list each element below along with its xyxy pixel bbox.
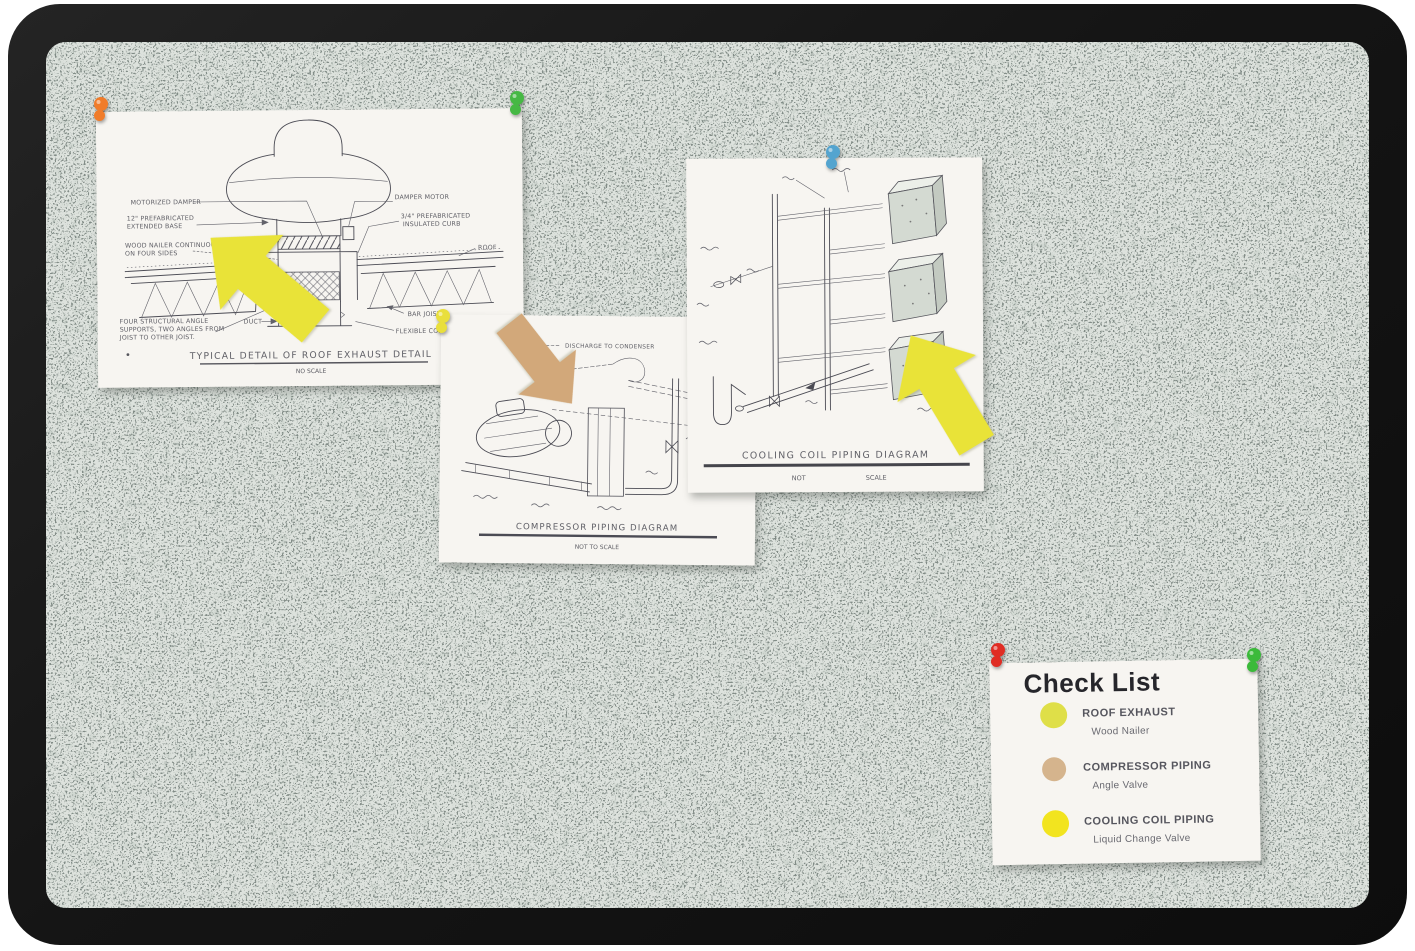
yellow-dot-icon [1040, 702, 1067, 728]
label-angle-supports-3: JOIST TO OTHER JOIST. [119, 334, 195, 342]
checklist-item-cooling-coil: COOLING COIL PIPING Liquid Change Valve [992, 807, 1261, 862]
compressor-title-block: COMPRESSOR PIPING DIAGRAM NOT TO SCALE [479, 522, 717, 552]
checklist-item-label: COOLING COIL PIPING [1084, 813, 1215, 827]
label-roof: ROOF [478, 244, 497, 251]
label-prefab-base-1: 12" PREFABRICATED [127, 215, 194, 223]
checklist-item-sub: Wood Nailer [1091, 726, 1149, 738]
label-insulated-curb-1: 3/4" PREFABRICATED [401, 213, 471, 221]
green-pushpin-icon [507, 90, 527, 123]
checklist-item-roof-exhaust: ROOF EXHAUST Wood Nailer [990, 699, 1259, 754]
yellow-pushpin-icon [433, 308, 453, 341]
label-prefab-base-2: EXTENDED BASE [127, 223, 183, 230]
cooling-coil-scale-left: NOT [792, 474, 806, 482]
cooling-coil-title: COOLING COIL PIPING DIAGRAM [742, 450, 930, 462]
yellow-dot-icon [1042, 810, 1069, 837]
checklist-item-sub: Angle Valve [1092, 780, 1148, 792]
orange-pushpin-icon [91, 96, 111, 129]
checklist-item-compressor-piping: COMPRESSOR PIPING Angle Valve [991, 753, 1260, 808]
compressor-scale-note: NOT TO SCALE [575, 544, 620, 551]
bulletin-board-photo: MOTORIZED DAMPER 12" PREFABRICATED EXTEN… [0, 0, 1415, 951]
label-wood-nailer-2: ON FOUR SIDES [125, 250, 178, 257]
cooling-coil-scale-right: SCALE [866, 474, 887, 482]
checklist-item-sub: Liquid Change Valve [1093, 833, 1190, 846]
label-motorized-damper: MOTORIZED DAMPER [131, 199, 202, 207]
label-damper-motor: DAMPER MOTOR [395, 194, 450, 201]
roof-exhaust-title-block: TYPICAL DETAIL OF ROOF EXHAUST DETAIL NO… [189, 349, 432, 376]
red-pushpin-icon [988, 642, 1008, 675]
checklist-note: Check List ROOF EXHAUST Wood Nailer COMP… [989, 659, 1260, 866]
label-angle-supports-1: FOUR STRUCTURAL ANGLE [120, 318, 209, 326]
blue-pushpin-icon [823, 144, 843, 177]
compressor-title: COMPRESSOR PIPING DIAGRAM [516, 522, 678, 534]
coil-unit [889, 253, 947, 321]
checklist-title: Check List [1023, 666, 1160, 699]
checklist-item-label: COMPRESSOR PIPING [1083, 759, 1211, 773]
checklist-item-label: ROOF EXHAUST [1082, 706, 1176, 720]
green-pushpin-icon [1244, 647, 1264, 680]
label-insulated-curb-2: INSULATED CURB [403, 221, 461, 229]
label-angle-supports-2: SUPPORTS, TWO ANGLES FROM [120, 326, 225, 334]
coil-unit [888, 175, 946, 243]
roof-exhaust-title: TYPICAL DETAIL OF ROOF EXHAUST DETAIL [189, 349, 432, 362]
tan-dot-icon [1042, 757, 1066, 781]
roof-exhaust-scale-note: NO SCALE [296, 368, 327, 375]
